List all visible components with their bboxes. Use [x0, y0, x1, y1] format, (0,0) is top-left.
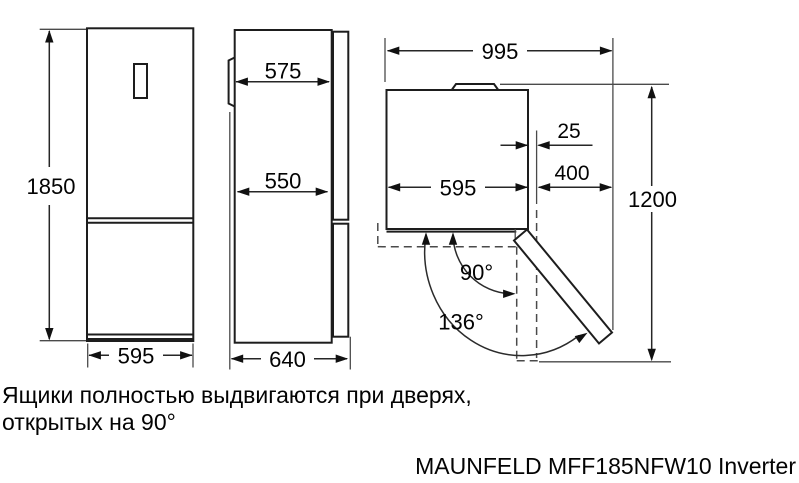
side-total-depth-label: 640 [269, 347, 306, 372]
top-total-width-label: 995 [482, 39, 519, 64]
top-door-clearance-label: 400 [554, 162, 589, 185]
door-swing-outline [378, 210, 538, 361]
front-height-label: 1850 [27, 174, 76, 199]
fridge-top-body [387, 90, 529, 229]
dimension-drawing: 1850 595 575 550 [0, 0, 799, 483]
door-angle-90-label: 90° [460, 260, 493, 285]
top-body-width-label: 595 [440, 175, 477, 200]
dim-595-front: 595 [88, 343, 193, 368]
top-hinge-offset-label: 25 [557, 120, 580, 143]
door-angle-136-label: 136° [438, 310, 484, 335]
side-view: 575 550 640 [229, 30, 351, 372]
open-door-136 [514, 230, 612, 344]
upper-door-side [333, 32, 348, 220]
note-line-1: Ящики полностью выдвигаются при дверях, [2, 382, 472, 408]
dim-400: 400 [538, 162, 613, 192]
front-width-label: 595 [118, 343, 155, 368]
drawing-canvas: 1850 595 575 550 [0, 0, 799, 483]
side-lower-depth-label: 550 [265, 169, 302, 194]
lower-door-side [333, 224, 348, 337]
top-view: 995 1200 25 595 [378, 38, 677, 362]
dim-1850: 1850 [27, 29, 86, 340]
fridge-display-panel [134, 64, 147, 98]
model-title: MAUNFELD MFF185NFW10 Inverter [415, 453, 796, 479]
note-line-2: открытых на 90° [2, 409, 176, 435]
angle-90: 90° [449, 232, 516, 298]
top-depth-clearance-label: 1200 [628, 187, 677, 212]
front-view: 1850 595 [27, 28, 194, 368]
footnote: Ящики полностью выдвигаются при дверях, … [2, 382, 472, 435]
side-upper-depth-label: 575 [265, 59, 302, 84]
